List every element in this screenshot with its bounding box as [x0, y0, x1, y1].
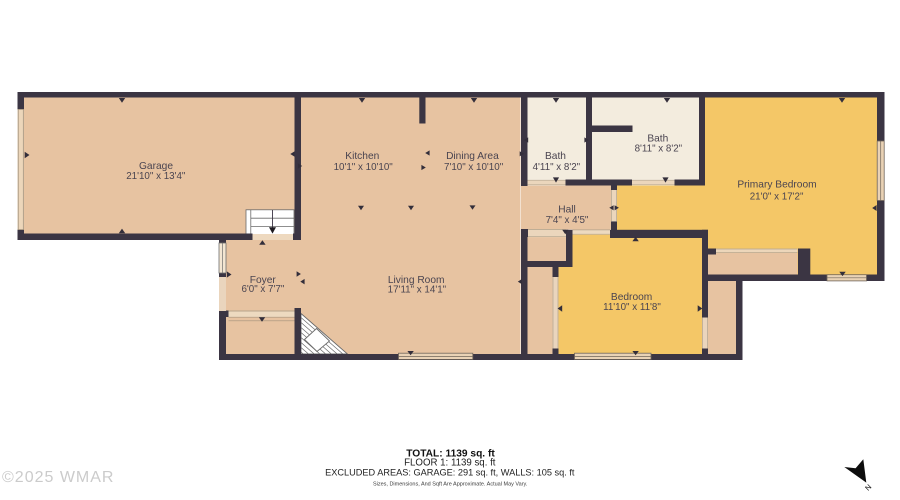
svg-text:Sizes, Dimensions, And Sqft Ar: Sizes, Dimensions, And Sqft Are Approxim… — [373, 481, 528, 487]
svg-text:Dining Area: Dining Area — [446, 151, 499, 162]
svg-text:Hall: Hall — [558, 204, 576, 215]
svg-text:21'10" x 13'4": 21'10" x 13'4" — [126, 171, 186, 182]
svg-text:©2025 WMAR: ©2025 WMAR — [2, 469, 114, 486]
svg-text:4'11" x 8'2": 4'11" x 8'2" — [533, 162, 581, 173]
svg-text:6'0" x 7'7": 6'0" x 7'7" — [241, 284, 284, 295]
svg-text:10'1" x 10'10": 10'1" x 10'10" — [334, 162, 394, 173]
svg-text:7'10" x 10'10": 7'10" x 10'10" — [444, 162, 504, 173]
svg-text:17'11" x 14'1": 17'11" x 14'1" — [388, 285, 447, 296]
svg-text:EXCLUDED AREAS: GARAGE: 291 sq: EXCLUDED AREAS: GARAGE: 291 sq. ft, WALL… — [325, 467, 575, 477]
svg-text:21'0" x 17'2": 21'0" x 17'2" — [750, 192, 804, 203]
svg-text:11'10" x 11'8": 11'10" x 11'8" — [603, 302, 661, 313]
svg-text:8'11" x 8'2": 8'11" x 8'2" — [635, 143, 683, 154]
svg-text:Primary Bedroom: Primary Bedroom — [737, 180, 816, 191]
svg-text:Kitchen: Kitchen — [345, 151, 379, 162]
svg-text:7'4" x 4'5": 7'4" x 4'5" — [546, 215, 589, 226]
svg-text:Bath: Bath — [545, 151, 566, 162]
